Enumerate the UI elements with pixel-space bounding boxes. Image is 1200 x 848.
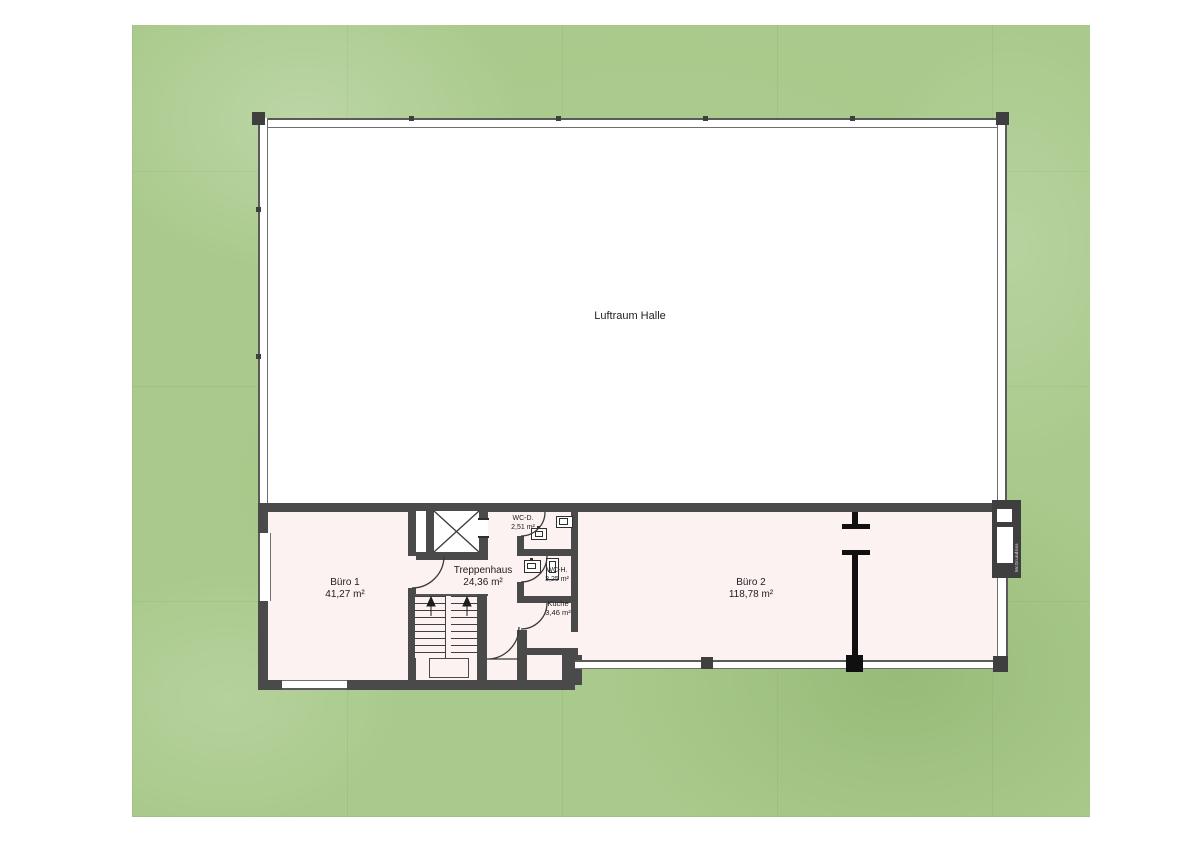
wch-label: WC-H. 3,25 m² — [538, 567, 576, 584]
wall-left-lower — [258, 601, 268, 690]
hall-wall-right — [997, 118, 1007, 508]
treppenhaus-area: 24,36 m² — [423, 577, 543, 589]
window-left — [258, 533, 271, 601]
elevator-door-gap — [479, 520, 488, 536]
elevator-door-tick — [478, 518, 489, 520]
buero2-area: 118,78 m² — [691, 589, 811, 601]
elevator-shaft — [434, 511, 479, 552]
partition-bar — [842, 524, 870, 529]
column-top-left — [252, 112, 265, 125]
shaft-duct — [416, 511, 426, 552]
sink-tap-icon — [530, 558, 533, 561]
sink-basin-icon — [559, 518, 568, 525]
wall-bottom-corner — [258, 680, 282, 690]
window-buero2-bottom — [575, 660, 999, 669]
kueche-area: 3,46 m² — [538, 609, 578, 618]
buero1-name: Büro 1 — [285, 577, 405, 589]
mullion-tick — [850, 116, 855, 121]
buero2-label: Büro 2 118,78 m² — [691, 577, 811, 600]
mullion-tick — [256, 207, 261, 212]
wall-kueche-left — [517, 630, 527, 690]
wall-wcd-wch — [517, 549, 578, 556]
partition-line — [852, 554, 858, 662]
sink-icon — [556, 516, 573, 528]
treppenhaus-label: Treppenhaus 24,36 m² — [423, 565, 543, 588]
stairs-flight-left — [415, 596, 445, 658]
watermark-box-small — [997, 509, 1012, 522]
kueche-label: Küche 3,46 m² — [538, 600, 578, 617]
wall-strip-top — [258, 503, 1012, 512]
mullion-tick — [703, 116, 708, 121]
mullion-tick — [409, 116, 414, 121]
mullion-tick — [256, 354, 261, 359]
column-top-right — [996, 112, 1009, 125]
wcd-label: WC-D. 2,51 m² — [503, 515, 543, 532]
mullion-tick — [556, 116, 561, 121]
wcd-area: 2,51 m² — [503, 524, 543, 533]
wall-left-upper — [258, 503, 268, 533]
wch-name: WC-H. — [538, 567, 576, 576]
treppenhaus-name: Treppenhaus — [423, 565, 543, 577]
watermark-box-large — [997, 527, 1013, 563]
wall-buero1-upper — [408, 512, 416, 556]
hall-wall-left — [258, 118, 268, 508]
elevator-door-tick — [478, 536, 489, 538]
buero1-area: 41,27 m² — [285, 589, 405, 601]
hall-label: Luftraum Halle — [550, 310, 710, 322]
wall-kueche-bottom — [517, 648, 578, 655]
wall-stairs-right — [477, 594, 487, 690]
floorplan-page: Luftraum Halle McGr — [0, 0, 1200, 848]
hall-wall-top — [258, 118, 1007, 128]
partition-end-block — [846, 655, 863, 672]
column-bottom-right — [993, 656, 1008, 672]
window-buero2-right — [997, 578, 1008, 662]
buero1-label: Büro 1 41,27 m² — [285, 577, 405, 600]
wcd-name: WC-D. — [503, 515, 543, 524]
duct-bottom-wall — [416, 552, 426, 560]
buero2-name: Büro 2 — [691, 577, 811, 589]
column-facade — [701, 657, 713, 669]
wall-bottom — [347, 680, 575, 690]
stairs-landing — [429, 658, 469, 678]
wch-area: 3,25 m² — [538, 576, 576, 585]
watermark-label: McGrundriss — [1013, 512, 1021, 572]
window-bottom — [282, 680, 347, 690]
